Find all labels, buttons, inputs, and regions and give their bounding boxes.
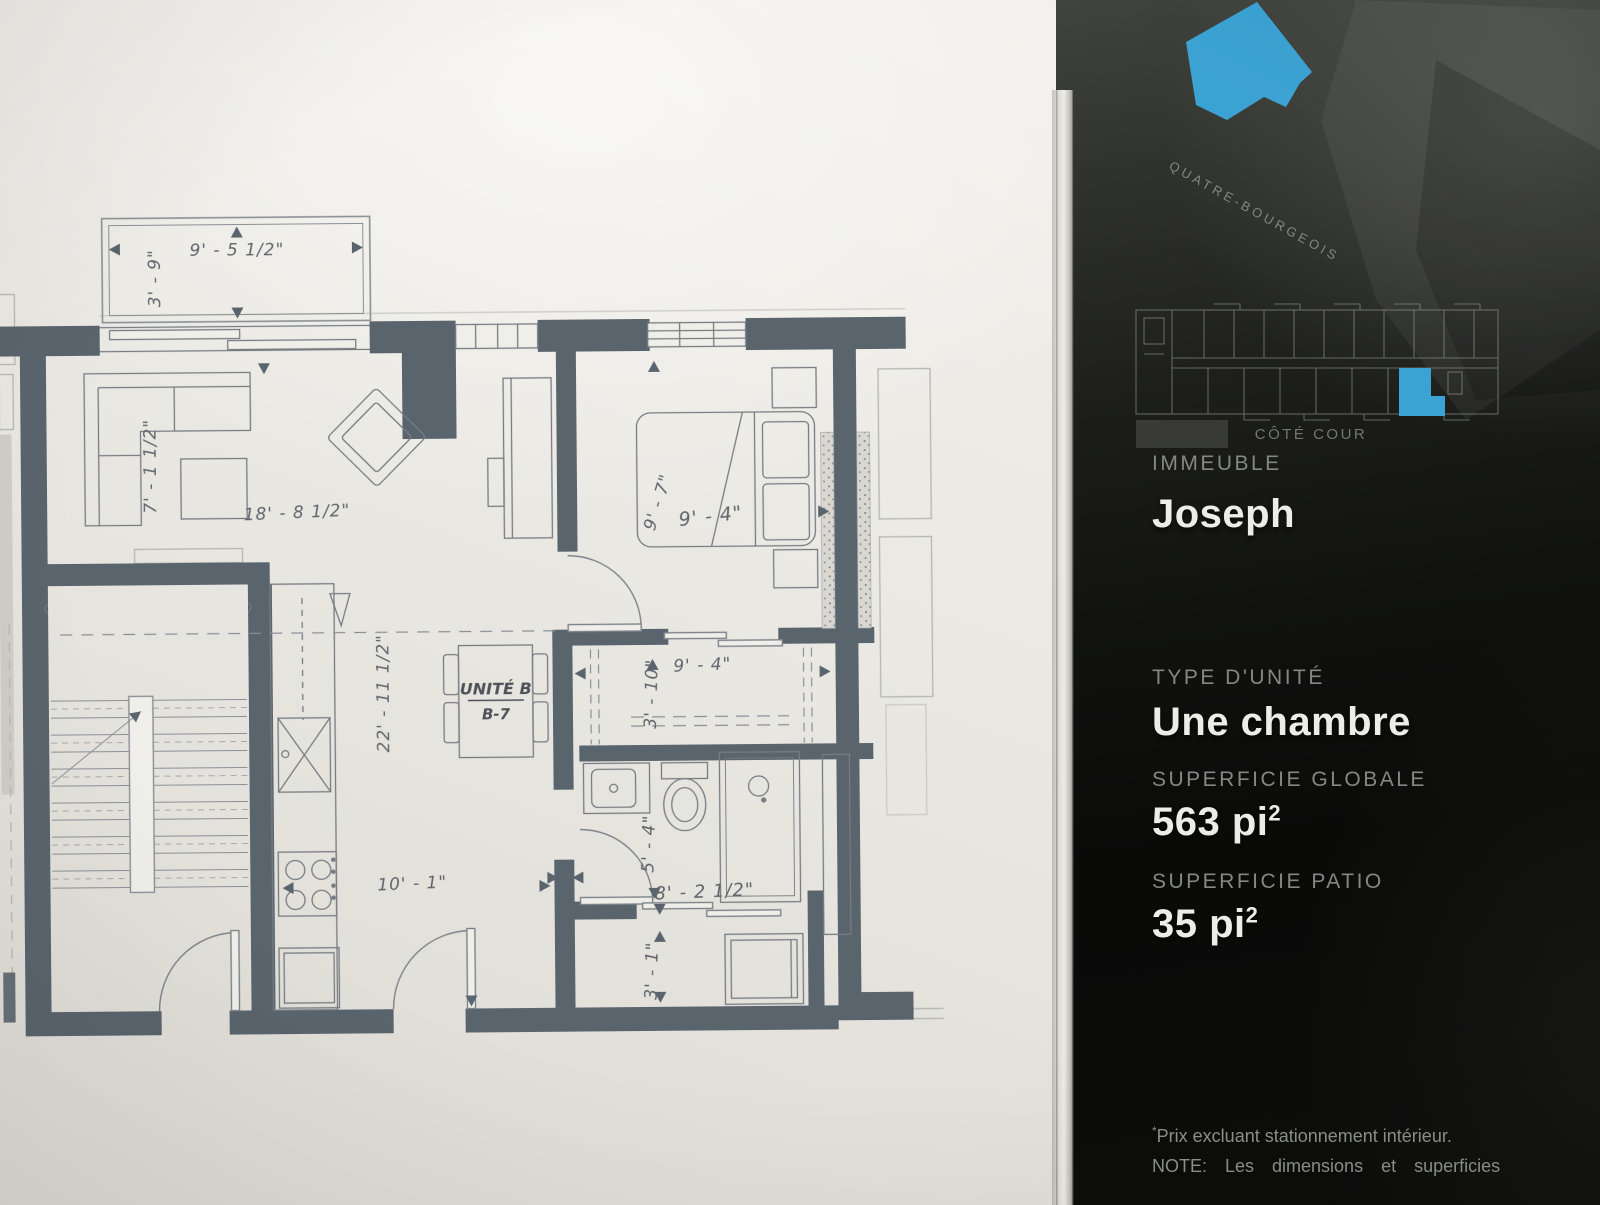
floor-plan: 9' - 5 1/2" 3' - 9" 7' - 1 1/2" 18' - 8 … <box>0 0 1061 1205</box>
wall-light <box>330 594 350 626</box>
dim-laundry-depth: 3' - 1" <box>641 941 663 1000</box>
dim-bath-width: 8' - 2 1/2" <box>654 879 755 904</box>
patio-area-value: 35 pi2 <box>1152 902 1582 947</box>
unit-type-label: TYPE D'UNITÉ <box>1152 666 1582 690</box>
sectional-sofa <box>84 372 251 525</box>
immeuble-value: Joseph <box>1152 492 1582 537</box>
floor-plan-page: 9' - 5 1/2" 3' - 9" 7' - 1 1/2" 18' - 8 … <box>0 0 1056 1205</box>
bedroom-window <box>648 322 746 347</box>
dim-living-side: 7' - 1 1/2" <box>140 419 161 514</box>
dim-bed-length: 9' - 7" <box>640 472 677 533</box>
dining-table <box>458 645 533 758</box>
shower-head <box>749 776 769 796</box>
map-caption: CÔTÉ COUR <box>1196 426 1426 443</box>
dining-area <box>443 645 548 758</box>
unit-location-highlight <box>1399 368 1445 416</box>
adjacent-units <box>0 286 944 1026</box>
dim-kitchen-width: 10' - 1" <box>377 873 448 896</box>
unit-type-value: Une chambre <box>1152 700 1582 745</box>
dim-balcony-depth: 3' - 9" <box>145 249 166 307</box>
area-value: 563 pi2 <box>1152 800 1582 845</box>
area-exponent: 2 <box>1268 801 1281 826</box>
kitchen <box>270 584 354 1011</box>
dim-closet-depth: 3' - 10" <box>641 659 663 729</box>
refrigerator <box>279 948 340 1009</box>
entry-door-swing <box>393 931 472 1010</box>
bedroom-door-swing <box>568 555 642 629</box>
toilet <box>664 778 706 830</box>
unit-label-group: UNITÉ B B-7 <box>460 679 532 724</box>
laundry-closet <box>725 934 804 1005</box>
coffee-table <box>181 458 248 519</box>
sliding-door-panel <box>110 330 240 340</box>
dim-balcony-width: 9' - 5 1/2" <box>189 240 284 261</box>
chair <box>444 703 459 743</box>
dim-bed-width: 9' - 4" <box>678 502 744 531</box>
patio-area-label: SUPERFICIE PATIO <box>1152 870 1582 894</box>
dimensions-note: NOTE: Les dimensions et superficies <box>1152 1156 1572 1177</box>
unit-label: UNITÉ B <box>460 679 532 699</box>
chair <box>533 702 548 742</box>
dim-living-width: 18' - 8 1/2" <box>243 501 350 526</box>
page-edge-highlight <box>1052 90 1074 1205</box>
dim-living-length: 22' - 11 1/2" <box>373 634 394 753</box>
brochure-photo: 9' - 5 1/2" 3' - 9" 7' - 1 1/2" 18' - 8 … <box>0 0 1600 1205</box>
info-panel: QUATRE-BOURGEOIS CÔTÉ COUR IMMEUBLE Jos <box>1056 0 1600 1205</box>
chair <box>532 654 547 694</box>
kitchen-counter <box>270 584 338 1011</box>
walls <box>0 317 914 1037</box>
closet-sliding-door <box>664 632 726 639</box>
pillow <box>762 422 808 478</box>
chair <box>443 655 458 695</box>
nightstand <box>772 367 816 407</box>
toilet-tank <box>661 762 707 778</box>
area-label: SUPERFICIE GLOBALE <box>1152 768 1582 792</box>
price-footnote: *Prix excluant stationnement intérieur. <box>1152 1124 1572 1147</box>
patio-exponent: 2 <box>1246 903 1259 928</box>
stair-rail <box>129 696 155 892</box>
immeuble-label: IMMEUBLE <box>1152 452 1582 476</box>
stairwell <box>45 602 254 893</box>
sliding-door-panel <box>228 339 356 349</box>
dim-closet-width: 9' - 4" <box>673 654 732 677</box>
pillow <box>763 484 809 540</box>
tv-console <box>503 378 552 538</box>
unit-number: B-7 <box>482 705 511 723</box>
nightstand <box>774 549 818 587</box>
brand-logo <box>1181 0 1331 130</box>
dim-bath-depth: 5' - 4" <box>638 814 660 873</box>
stair-door-swing <box>159 933 236 1012</box>
